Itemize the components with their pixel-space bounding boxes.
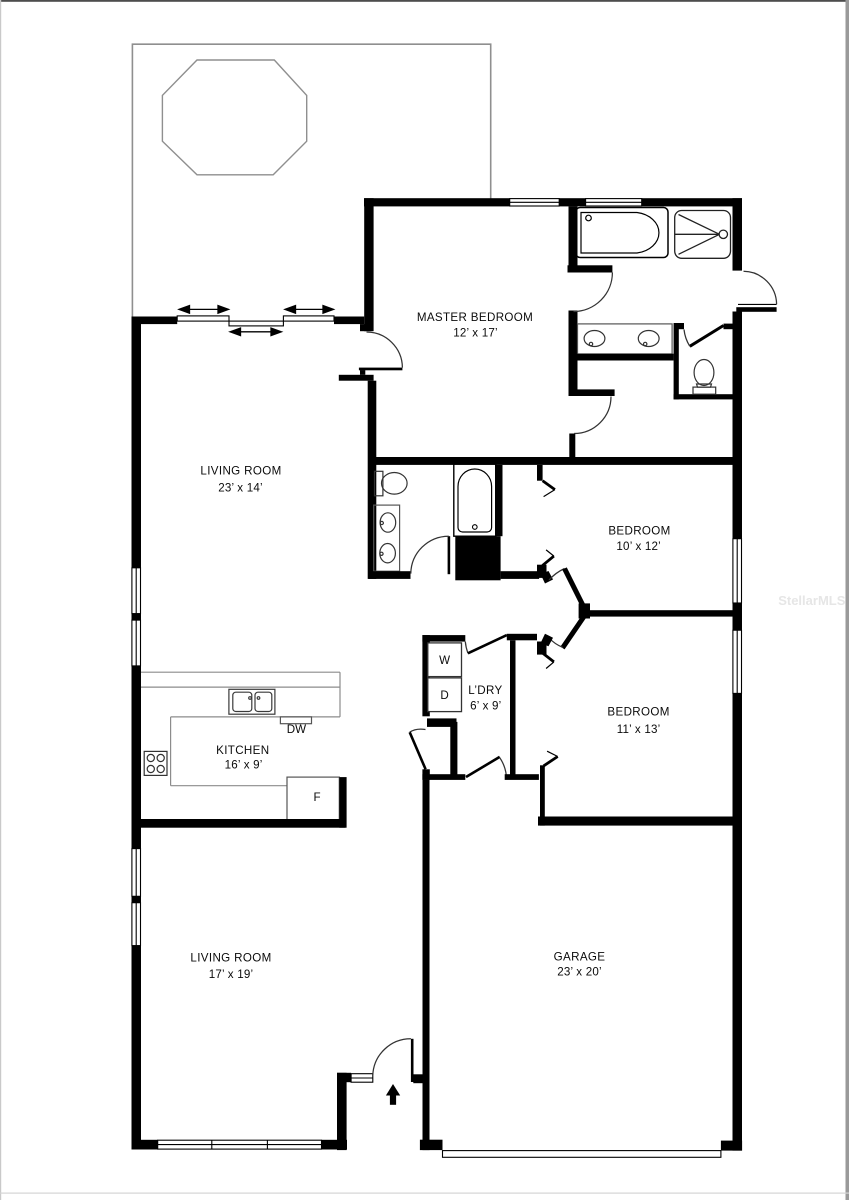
svg-text:BEDROOM: BEDROOM bbox=[607, 706, 669, 719]
svg-text:16’ x 9’: 16’ x 9’ bbox=[225, 759, 263, 772]
svg-text:23’ x 14’: 23’ x 14’ bbox=[218, 482, 263, 495]
svg-text:DW: DW bbox=[287, 723, 306, 736]
svg-text:F: F bbox=[313, 791, 320, 804]
svg-text:MASTER BEDROOM: MASTER BEDROOM bbox=[417, 311, 533, 324]
svg-text:6’ x 9’: 6’ x 9’ bbox=[470, 699, 501, 712]
svg-text:GARAGE: GARAGE bbox=[554, 951, 606, 964]
svg-text:17’ x 19’: 17’ x 19’ bbox=[209, 968, 254, 981]
svg-text:W: W bbox=[439, 654, 450, 667]
svg-text:StellarMLS: StellarMLS bbox=[778, 593, 846, 608]
svg-text:12’ x 17’: 12’ x 17’ bbox=[453, 326, 498, 339]
svg-text:D: D bbox=[440, 689, 448, 702]
svg-text:BEDROOM: BEDROOM bbox=[608, 525, 670, 538]
svg-text:LIVING ROOM: LIVING ROOM bbox=[190, 952, 271, 965]
svg-text:LIVING ROOM: LIVING ROOM bbox=[200, 465, 281, 478]
svg-text:10’ x 12’: 10’ x 12’ bbox=[616, 540, 661, 553]
svg-text:L’DRY: L’DRY bbox=[468, 684, 502, 697]
svg-text:11’ x 13’: 11’ x 13’ bbox=[617, 723, 661, 736]
svg-text:KITCHEN: KITCHEN bbox=[216, 744, 269, 757]
svg-text:23’ x 20’: 23’ x 20’ bbox=[557, 965, 602, 978]
